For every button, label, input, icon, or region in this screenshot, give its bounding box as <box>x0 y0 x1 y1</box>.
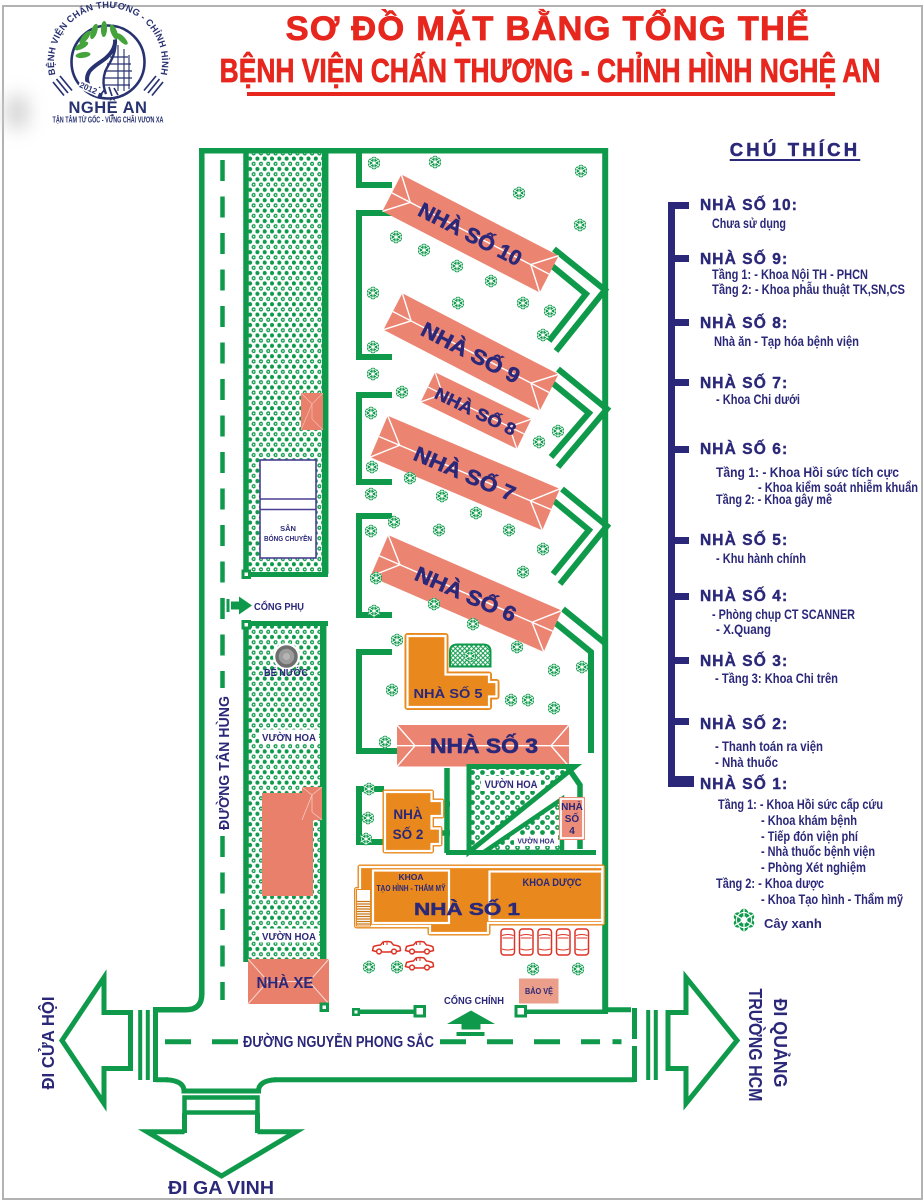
svg-text:KHOA DƯỢC: KHOA DƯỢC <box>523 877 582 889</box>
svg-text:VƯỜN HOA: VƯỜN HOA <box>518 837 556 846</box>
svg-text:CỔNG PHỤ: CỔNG PHỤ <box>254 600 304 613</box>
svg-text:BẢO VỆ: BẢO VỆ <box>525 985 553 996</box>
svg-text:BỂ NƯỚC: BỂ NƯỚC <box>264 666 308 679</box>
svg-text:4: 4 <box>569 826 575 837</box>
svg-text:SÂN: SÂN <box>280 524 296 533</box>
svg-text:ĐI GA VINH: ĐI GA VINH <box>168 1177 274 1198</box>
svg-text:NHÀ XE: NHÀ XE <box>257 975 314 992</box>
svg-text:NHÀ SỐ 5: NHÀ SỐ 5 <box>414 686 483 701</box>
svg-text:VƯỜN HOA: VƯỜN HOA <box>262 731 316 744</box>
svg-text:TẠO HÌNH - THẨM MỸ: TẠO HÌNH - THẨM MỸ <box>377 882 446 893</box>
svg-text:CỔNG CHÍNH: CỔNG CHÍNH <box>444 994 504 1007</box>
svg-text:VƯỜN HOA: VƯỜN HOA <box>262 930 316 943</box>
svg-text:NHÀ: NHÀ <box>561 800 583 813</box>
svg-text:NHÀ SỐ 1: NHÀ SỐ 1 <box>414 898 520 919</box>
svg-text:ĐI CỬA HỘI: ĐI CỬA HỘI <box>37 997 58 1090</box>
svg-text:NHÀ: NHÀ <box>393 807 422 822</box>
svg-text:NHÀ SỐ 3: NHÀ SỐ 3 <box>430 734 538 758</box>
svg-text:BÓNG CHUYỀN: BÓNG CHUYỀN <box>264 533 312 543</box>
svg-text:ĐI QUẢNG: ĐI QUẢNG <box>770 999 791 1088</box>
svg-text:SỐ 2: SỐ 2 <box>393 827 424 842</box>
svg-text:SỐ: SỐ <box>565 811 580 825</box>
svg-text:KHOA: KHOA <box>398 872 423 882</box>
svg-text:ĐƯỜNG NGUYỄN PHONG SẮC: ĐƯỜNG NGUYỄN PHONG SẮC <box>243 1033 434 1051</box>
svg-text:VƯỜN HOA: VƯỜN HOA <box>485 778 538 791</box>
svg-text:TRƯỜNG HCM: TRƯỜNG HCM <box>745 989 766 1102</box>
svg-text:ĐƯỜNG TÂN HÙNG: ĐƯỜNG TÂN HÙNG <box>215 696 233 830</box>
